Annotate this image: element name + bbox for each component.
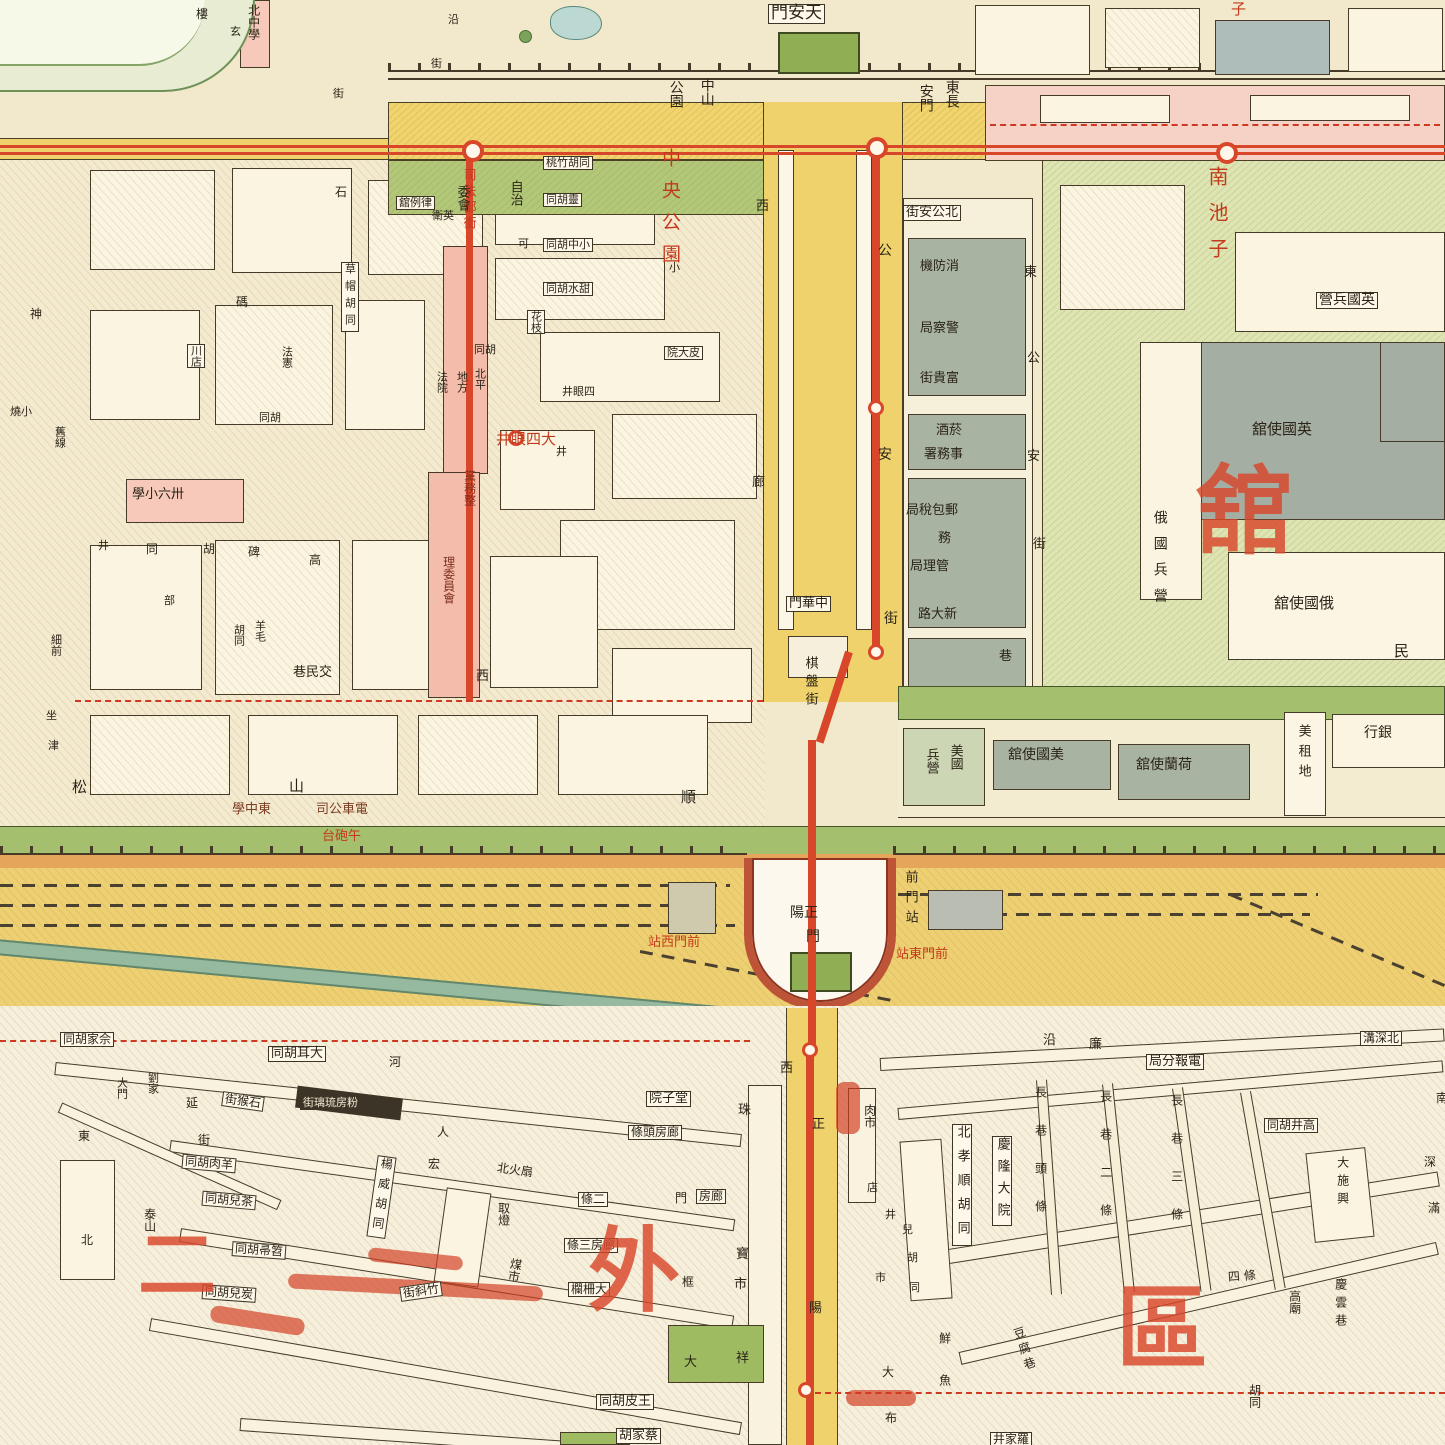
map-label: 溝深北 (1360, 1031, 1402, 1046)
zhubaoshi-street (748, 1085, 782, 1445)
map-label: 廉 (1089, 1038, 1102, 1052)
map-label: 公 (1027, 352, 1040, 366)
label-fugui-street: 街貴富 (920, 372, 959, 386)
city-block (90, 170, 215, 270)
label-postal-parcel: 局稅包郵 (906, 504, 958, 518)
map-label: 草帽胡同 (341, 262, 359, 332)
map-label: 同 (909, 1282, 920, 1294)
label-british-legation: 舘使國英 (1252, 422, 1312, 438)
map-label: 井 (98, 540, 109, 552)
map-label: 延 (186, 1097, 198, 1110)
map-label: 鮮魚 (938, 1332, 951, 1416)
label-zhongshan-park: 中山 (699, 78, 714, 106)
red-road-highlight (846, 1390, 916, 1406)
city-block (90, 545, 202, 690)
railway-track (0, 924, 735, 927)
railway-track (950, 913, 1310, 916)
city-block (60, 1160, 115, 1280)
route-sifabu-street (466, 150, 473, 702)
map-label: 同胡家佘 (60, 1032, 114, 1047)
label-tobacco-alcohol-office: 署務事 (924, 448, 963, 462)
map-label: 西 (476, 670, 489, 684)
label-qipan-street: 棋盤街 (803, 656, 817, 710)
map-label: 自治 (508, 180, 522, 206)
map-label: 兒 (902, 1224, 913, 1236)
map-label: 同 (146, 543, 158, 556)
city-block (248, 715, 398, 795)
label-peiping-local-court: 地方 (456, 371, 468, 393)
map-label: 人 (437, 1126, 449, 1139)
label-zhengyangmen: 陽正 (790, 906, 818, 921)
map-label: 同胡靈 (543, 193, 582, 207)
label-tiananmen: 門安天 (768, 4, 825, 24)
label-36th-primary-school: 學小六卅 (132, 488, 184, 502)
label-british-barracks: 營兵國英 (1316, 292, 1378, 309)
map-label: 珠 (738, 1104, 751, 1118)
label-american-barracks: 兵營 (924, 748, 938, 774)
map-label: 山 (289, 779, 304, 795)
label-admin-bureau: 局理管 (910, 560, 949, 574)
map-label: 四 條 (1228, 1269, 1257, 1284)
label-noon-gun: 台砲午 (322, 830, 361, 844)
building-british-barracks (1235, 232, 1445, 332)
map-label: 同胡水甜 (543, 282, 593, 296)
railway-track (0, 884, 730, 887)
city-block (1105, 8, 1200, 68)
map-label: 陽 (809, 1302, 822, 1316)
city-wall-battlements-east (893, 846, 1445, 855)
district-overlay-char: 外 (588, 1224, 680, 1321)
map-label: 胡同 (233, 624, 245, 646)
map-label: 街 (198, 1134, 210, 1147)
tram-stop-east (1216, 142, 1238, 164)
label-american-barracks: 美國 (948, 744, 962, 770)
map-label: 西 (756, 200, 769, 214)
label-dongchangan-gate: 安門 (918, 84, 933, 112)
map-label: 滿 (1428, 1202, 1440, 1215)
map-label: 高廟 (1288, 1290, 1301, 1314)
label-zhongshan-park: 公園 (668, 80, 683, 108)
map-label: 桃竹胡同 (543, 156, 593, 170)
map-label: 布 (885, 1412, 897, 1425)
label-wangpi-hutong: 同胡皮王 (596, 1394, 654, 1410)
map-label: 取燈 (497, 1202, 510, 1226)
label-police-bureau: 局察警 (920, 322, 959, 336)
map-label: 碑 (248, 546, 260, 559)
map-label: 井家羅 (990, 1432, 1032, 1445)
map-label: 胡同 (1248, 1384, 1261, 1408)
district-overlay-char: 舘 (1196, 462, 1292, 563)
label-russian-barracks: 俄國兵營 (1152, 510, 1167, 614)
map-label: 神 (30, 308, 42, 321)
building-bank (1332, 714, 1445, 768)
city-block (418, 715, 538, 795)
map-label: 民 (1394, 644, 1409, 660)
railway-belt (0, 868, 1445, 1006)
city-block (1348, 8, 1443, 72)
map-label: 子 (1231, 2, 1246, 18)
label-beigongan-street: 街安公北 (903, 205, 961, 221)
map-label: 煤市 (506, 1257, 523, 1283)
map-label: 同胡中小 (543, 238, 593, 252)
map-label: 務 (938, 532, 951, 546)
label-fire-brigade: 機防消 (920, 260, 959, 274)
label-american-legation: 舘使國美 (1008, 748, 1064, 763)
city-block (612, 648, 752, 723)
map-label: 可 (518, 238, 529, 250)
corridor-west-gallery (778, 150, 794, 630)
map-label: 羊毛 (254, 620, 266, 642)
map-label: 河 (389, 1056, 401, 1069)
label-american-concession: 美租地 (1296, 724, 1310, 784)
map-label: 同胡 (474, 344, 496, 356)
label-fenfang-liuli-street: 街璃琉房粉 (300, 1096, 361, 1110)
map-label: 北 (81, 1234, 93, 1247)
map-label: 委會 (455, 185, 469, 211)
tram-stop (868, 400, 884, 416)
map-label: 高 (309, 554, 321, 567)
map-label: 井 (885, 1209, 896, 1221)
map-label: 井 (556, 446, 567, 458)
label-tram-company: 司公車電 (316, 803, 368, 817)
label-jiaominxiang: 巷民交 (293, 666, 332, 680)
label-central-park-route: 中央公園 (659, 148, 679, 276)
city-block (352, 540, 430, 690)
route-jiaominxiang-dashed (75, 700, 763, 702)
map-label: 寶 (736, 1248, 749, 1262)
tram-stop-west (462, 140, 484, 162)
map-label: 胡 (907, 1252, 918, 1264)
label-zhonghua-gate: 門華中 (786, 596, 831, 612)
map-label: 衛英 (432, 210, 454, 222)
map-label: 街 (431, 58, 442, 70)
city-block (490, 556, 598, 688)
map-label: 東 (1024, 266, 1037, 280)
map-label: 碼 (236, 296, 248, 309)
city-block (232, 168, 352, 273)
building-russian-legation (1228, 552, 1445, 660)
map-label: 法憲 (281, 346, 293, 368)
city-block (1215, 20, 1330, 75)
map-label: 宏 (428, 1158, 440, 1171)
green-block-daxiang (668, 1325, 764, 1383)
city-block (1250, 95, 1410, 121)
label-qianmen-station: 前門站 (903, 870, 917, 930)
map-label: 津 (48, 740, 59, 752)
label-siyanjing: 井眼四大 (496, 432, 556, 448)
map-label: 深 (1424, 1156, 1436, 1169)
city-block (1060, 185, 1185, 310)
map-label: 大 (882, 1366, 894, 1379)
map-label: 正 (812, 1118, 825, 1132)
label-nanchizi: 南池子 (1206, 166, 1227, 274)
city-block (975, 5, 1090, 75)
map-label: 同胡 (259, 412, 281, 424)
map-label: 劉家 (147, 1072, 159, 1094)
map-label: 市 (875, 1272, 886, 1284)
map-label: 小 (669, 262, 680, 274)
west-station-building (668, 882, 716, 934)
label-xindalu: 路大新 (918, 608, 957, 622)
map-label: 安 (878, 448, 892, 463)
corridor-east-gallery (856, 150, 872, 630)
map-label: 東 (78, 1130, 90, 1143)
map-label: 燒小 (10, 406, 32, 418)
label-langfang-ertiao: 條二 (578, 1192, 608, 1207)
map-label: 祥 (736, 1352, 749, 1366)
map-label: 松 (72, 780, 87, 796)
map-label: 框 (682, 1276, 694, 1289)
tram-stop-center (866, 137, 888, 159)
label-tobacco-alcohol-office: 酒菸 (936, 424, 962, 438)
map-label: 西 (780, 1062, 793, 1076)
label-telegraph-branch: 局分報電 (1146, 1054, 1204, 1070)
label-party-affairs-committee: 黨務整 (463, 470, 476, 506)
label-party-affairs-committee: 理委員會 (442, 556, 455, 604)
label-changxiang-toutiao: 長巷頭條 (1034, 1086, 1047, 1238)
building-postal-admin (908, 478, 1026, 628)
route-qianmen (808, 740, 816, 1045)
red-road-highlight (836, 1082, 860, 1134)
map-label: 舊線 (54, 426, 66, 448)
map-label: 舘例律 (396, 196, 435, 210)
building-gray-annex (1380, 342, 1445, 442)
map-label: 街 (884, 612, 898, 627)
map-label: 院子堂 (646, 1091, 691, 1107)
label-bank: 行銀 (1364, 726, 1392, 741)
east-station-building (928, 890, 1003, 930)
map-label: 店 (867, 1182, 878, 1194)
map-label: 慶雲巷 (1334, 1278, 1347, 1332)
label-qianmen-west-station: 站西門前 (648, 936, 700, 950)
building-russian-barracks (1140, 342, 1202, 600)
map-label: 沿 (448, 14, 459, 26)
label-langfang-toutiao: 條頭房廊 (628, 1125, 682, 1140)
map-label: 院大皮 (664, 346, 703, 360)
label-beixiaoshun-hutong: 北孝順胡同 (952, 1124, 972, 1246)
map-label: 巷 (999, 650, 1012, 664)
city-block (215, 305, 333, 425)
label-qinglong-dayuan: 慶隆大院 (992, 1136, 1012, 1226)
map-label: 石 (335, 186, 347, 199)
map-label: 南 (1436, 1092, 1445, 1105)
map-label: 沿 (1043, 1034, 1056, 1048)
map-label: 門 (675, 1192, 687, 1205)
historical-beijing-map: 門安天中山公園東長安門北中學樓玄沿街街子中央公園南池子司法部街街安公北公安街東公… (0, 0, 1445, 1445)
tram-stop (868, 644, 884, 660)
map-label: 街 (1033, 538, 1046, 552)
map-label: 樓 (196, 8, 208, 21)
tram-stop (802, 1042, 818, 1058)
tree-icon (519, 30, 532, 43)
map-label: 廊 (752, 476, 765, 490)
tram-dashed-east (990, 124, 1440, 126)
city-block (1040, 95, 1170, 123)
label-peiping-local-court: 法院 (436, 371, 448, 393)
map-label: 細前 (50, 634, 62, 656)
city-wall-battlements-west (0, 846, 747, 855)
map-label: 胡 (203, 543, 215, 556)
label-dongzhong-school: 學中東 (232, 803, 271, 817)
map-label: 房廊 (696, 1189, 726, 1204)
city-block (90, 310, 200, 420)
label-beizhong-school: 北中學 (247, 4, 260, 40)
map-label: 肉市 (863, 1104, 876, 1128)
city-block (558, 715, 708, 795)
map-label: 玄 (230, 26, 241, 38)
city-block (90, 715, 230, 795)
railway-track (0, 904, 705, 907)
tram-stop (798, 1382, 814, 1398)
map-label: 川店 (187, 344, 205, 368)
map-label: 安 (1027, 450, 1040, 464)
map-label: 花枝 (527, 310, 545, 334)
label-qianmen-east-station: 站東門前 (896, 948, 948, 962)
label-changxiang-santiao: 長巷三條 (1170, 1094, 1183, 1246)
label-russian-legation: 舘使國俄 (1274, 596, 1334, 612)
label-dongchangan-gate: 東長 (944, 80, 959, 108)
label-peiping-local-court: 北平 (474, 368, 486, 390)
tiananmen-gate-block (778, 32, 860, 74)
map-label: 大 (684, 1356, 697, 1370)
label-changxiang-ertiao: 長巷二條 (1099, 1090, 1112, 1242)
building-american-barracks (903, 728, 985, 806)
small-pond (550, 6, 602, 40)
map-label: 大門 (116, 1077, 128, 1099)
city-block (612, 414, 757, 499)
label-zhengyangmen: 門 (806, 930, 820, 945)
map-label: 坐 (46, 710, 57, 722)
palace-wall-line (388, 78, 1445, 80)
district-overlay-char: 二 (138, 1226, 216, 1308)
label-dutch-legation: 舘使蘭荷 (1136, 758, 1192, 773)
map-label: 市 (734, 1278, 747, 1292)
zhengyangmen-gate-block (790, 952, 852, 992)
map-label: 部 (164, 595, 175, 607)
label-caijia-hutong: 胡家蔡 (616, 1428, 661, 1444)
label-gaojing-hutong: 同胡井高 (1264, 1118, 1318, 1133)
map-label: 街 (333, 88, 344, 100)
map-label: 同胡耳大 (268, 1046, 326, 1062)
map-label: 公 (878, 244, 892, 259)
district-overlay-char: 區 (1116, 1282, 1208, 1379)
map-label: 順 (681, 790, 696, 806)
map-label: 井眼四 (562, 386, 595, 398)
map-label: 大施興 (1336, 1156, 1349, 1210)
